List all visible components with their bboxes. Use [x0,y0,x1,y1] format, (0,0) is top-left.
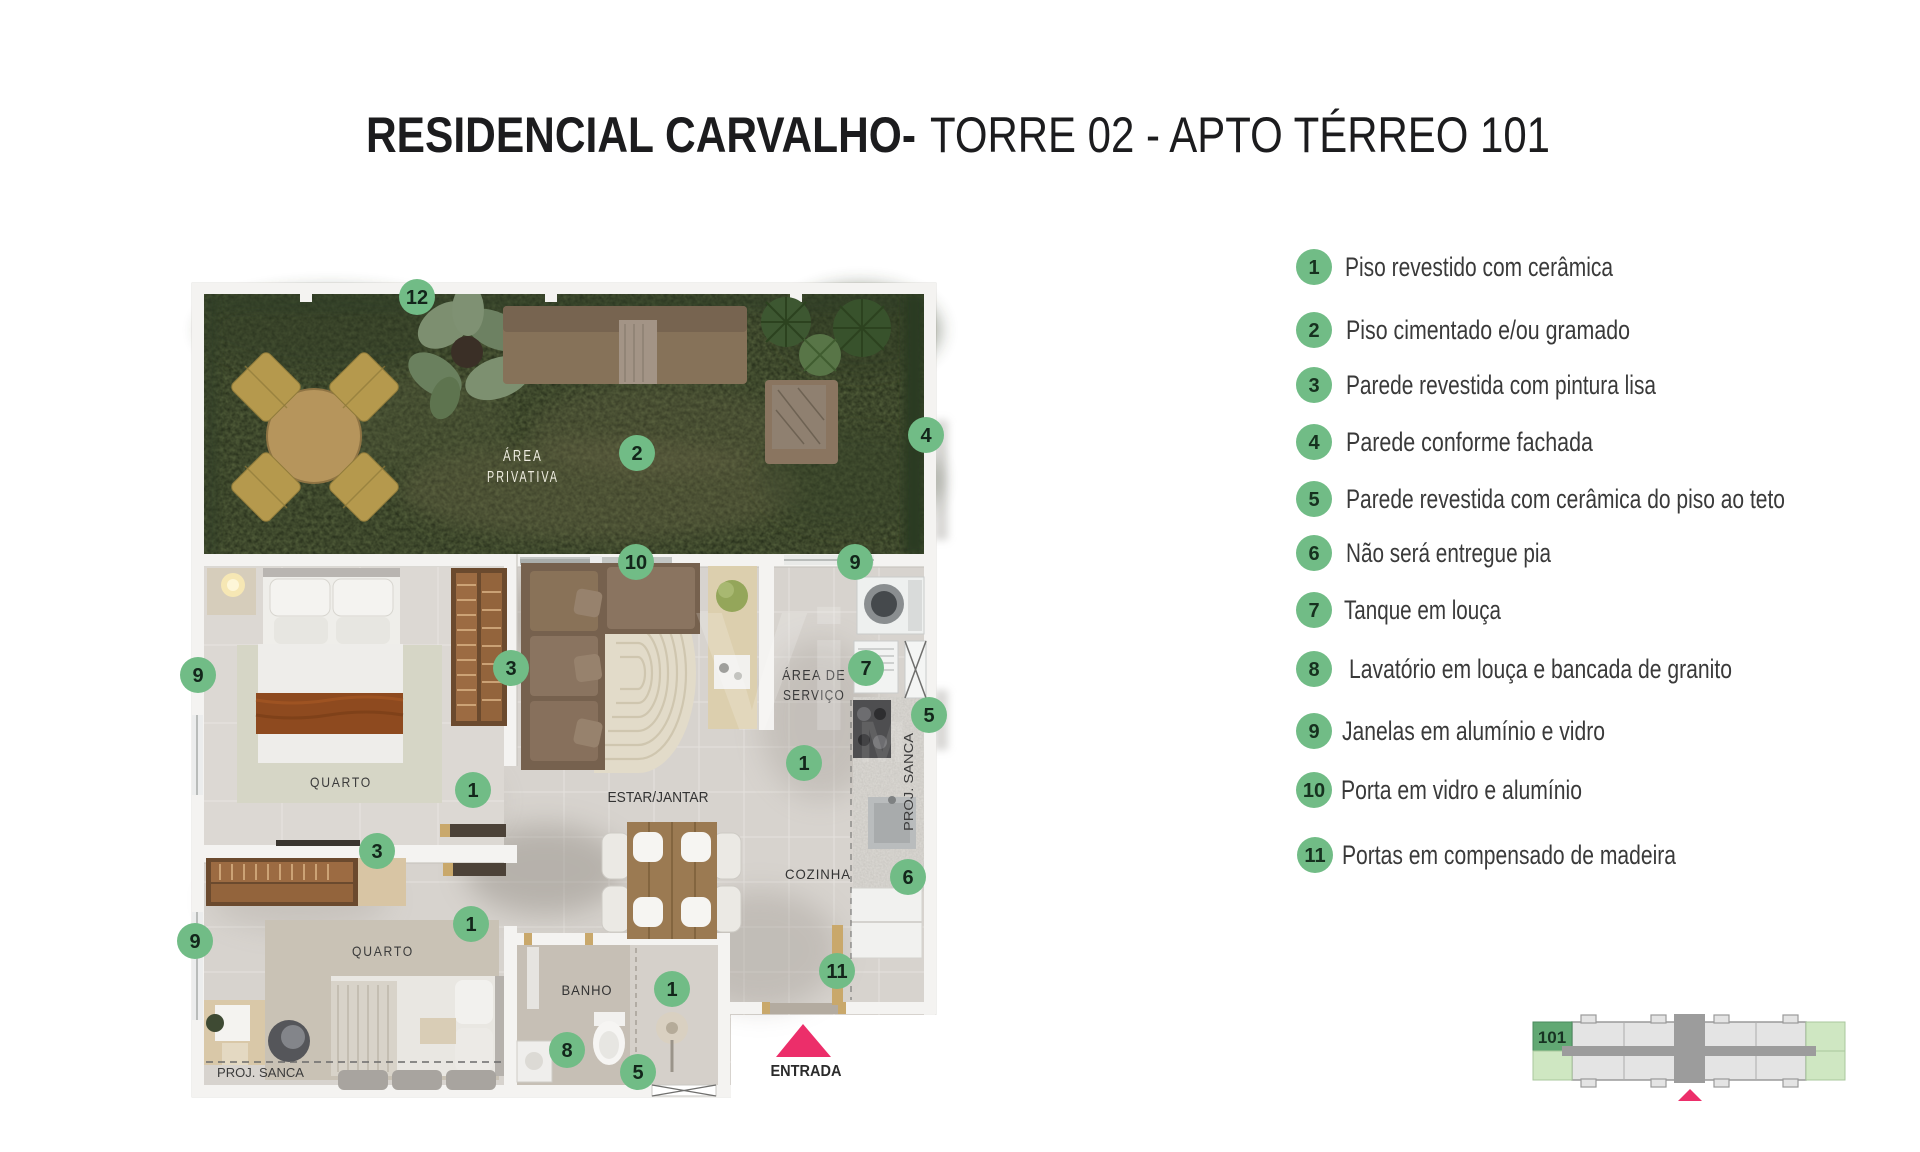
svg-text:9: 9 [1308,721,1319,743]
svg-text:11: 11 [826,961,847,983]
svg-text:Piso cimentado e/ou gramado: Piso cimentado e/ou gramado [1346,315,1630,345]
svg-text:10: 10 [625,552,647,574]
svg-text:QUARTO: QUARTO [352,943,414,959]
svg-text:9: 9 [192,665,203,687]
svg-text:8: 8 [1308,659,1319,681]
svg-text:COZINHA: COZINHA [785,866,851,882]
svg-text:4: 4 [1308,432,1320,454]
svg-text:1: 1 [798,753,809,775]
svg-text:1: 1 [666,979,677,1001]
svg-text:Lavatório em louça e bancada d: Lavatório em louça e bancada de granito [1349,654,1732,684]
svg-text:Parede revestida com cerâmica: Parede revestida com cerâmica do piso ao… [1346,484,1785,514]
svg-text:6: 6 [1308,543,1319,565]
svg-text:4: 4 [920,425,932,447]
svg-text:1: 1 [465,914,476,936]
svg-text:10: 10 [1303,780,1325,802]
svg-text:9: 9 [849,552,860,574]
svg-text:Piso revestido com cerâmica: Piso revestido com cerâmica [1345,252,1614,282]
svg-text:PRIVATIVA: PRIVATIVA [487,469,559,486]
svg-text:9: 9 [189,931,200,953]
svg-text:Tanque em louça: Tanque em louça [1344,595,1502,625]
svg-text:ESTAR/JANTAR: ESTAR/JANTAR [608,789,709,806]
svg-text:QUARTO: QUARTO [310,774,372,790]
svg-text:PROJ. SANCA: PROJ. SANCA [217,1065,304,1080]
svg-text:2: 2 [631,443,642,465]
svg-text:5: 5 [923,705,934,727]
svg-text:1: 1 [467,780,478,802]
svg-text:3: 3 [505,658,516,680]
svg-text:M: M [858,710,906,775]
svg-text:3: 3 [1308,375,1319,397]
svg-text:Portas em compensado de madeir: Portas em compensado de madeira [1342,840,1677,870]
svg-text:5: 5 [1308,489,1319,511]
svg-text:Vi: Vi [695,577,853,767]
svg-text:BANHO: BANHO [562,982,613,998]
svg-text:ENTRADA: ENTRADA [771,1063,842,1080]
svg-text:2: 2 [1308,320,1319,342]
svg-text:7: 7 [1308,600,1319,622]
svg-text:TORRE 02 - APTO TÉRREO 101: TORRE 02 - APTO TÉRREO 101 [930,107,1550,163]
svg-text:Não será entregue pia: Não será entregue pia [1346,538,1552,568]
svg-text:8: 8 [561,1040,572,1062]
svg-text:RESIDENCIAL CARVALHO-: RESIDENCIAL CARVALHO- [366,107,916,163]
svg-text:Porta em vidro e alumínio: Porta em vidro e alumínio [1341,775,1582,805]
svg-text:7: 7 [860,658,871,680]
svg-text:101: 101 [1538,1028,1566,1047]
svg-text:Janelas em alumínio e vidro: Janelas em alumínio e vidro [1342,716,1605,746]
svg-text:1: 1 [1308,257,1319,279]
svg-text:6: 6 [902,867,913,889]
svg-text:11: 11 [1304,845,1325,867]
svg-text:12: 12 [406,287,428,309]
svg-text:5: 5 [632,1062,643,1084]
svg-text:ÁREA: ÁREA [503,446,543,465]
svg-text:Parede revestida com pintura l: Parede revestida com pintura lisa [1346,370,1657,400]
svg-text:Parede conforme fachada: Parede conforme fachada [1346,427,1594,457]
svg-text:3: 3 [371,841,382,863]
